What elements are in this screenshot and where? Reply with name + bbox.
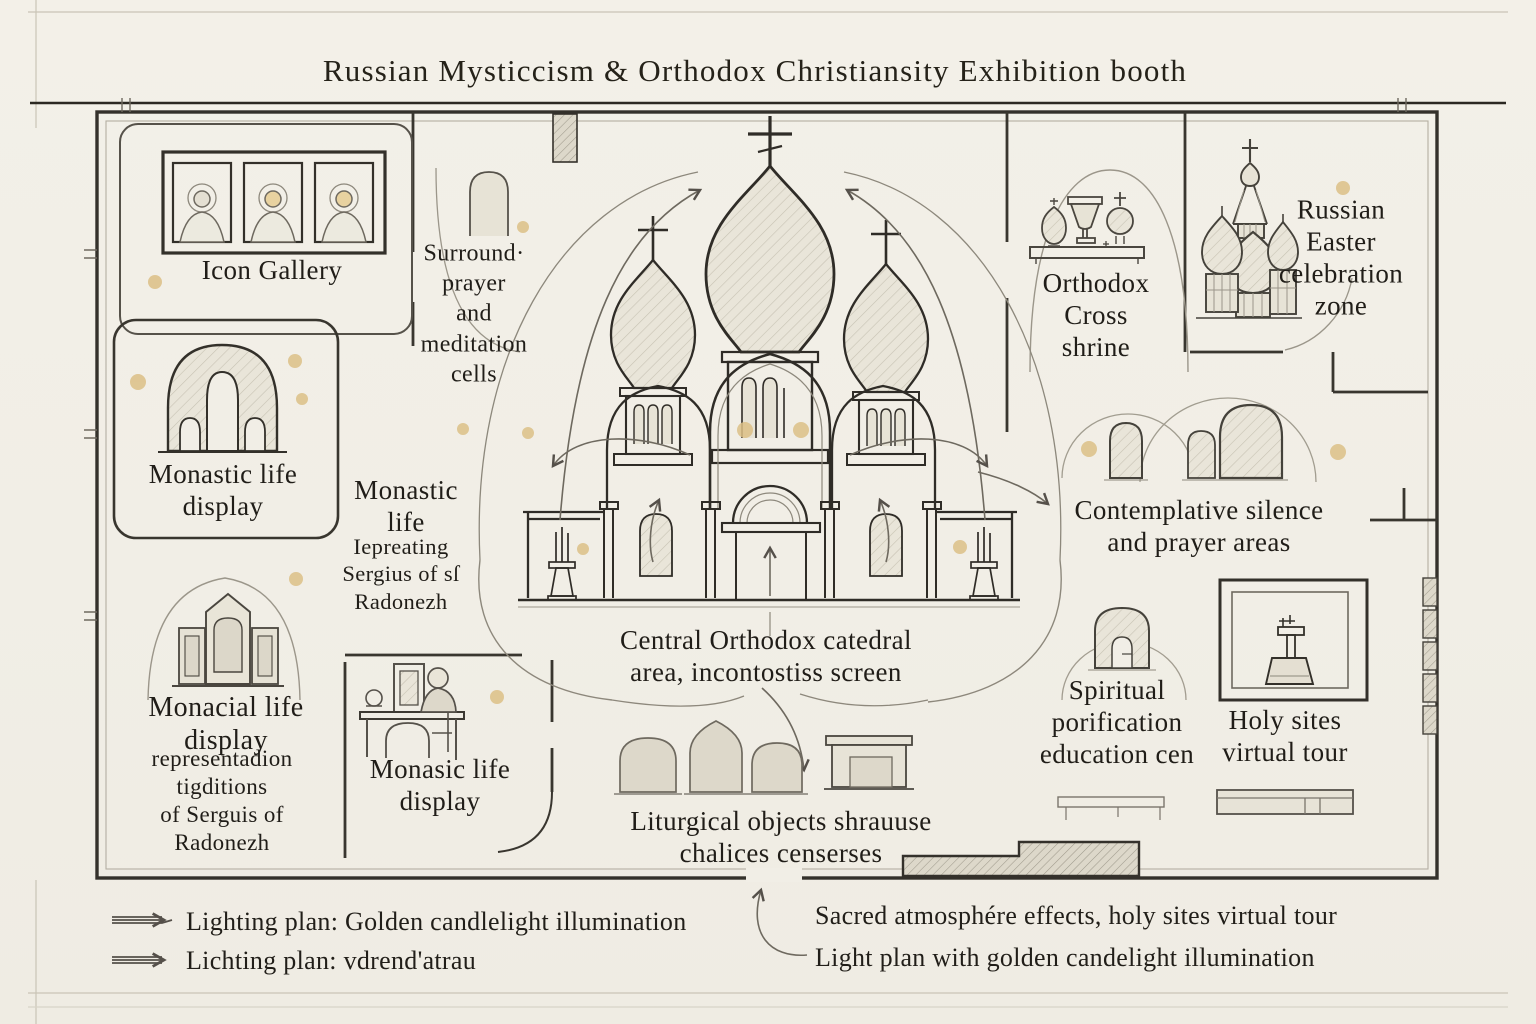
- zone-label-surround-cells: Surround· prayer and meditation cells: [421, 238, 528, 389]
- display-case-icon: [824, 736, 914, 789]
- display-niches-icon: [614, 721, 914, 794]
- zone-label-liturgical-objects: Liturgical objects shrauuse chalices cen…: [630, 806, 931, 870]
- bench-icon: [1058, 790, 1353, 820]
- triptych-shrine-icon: [172, 594, 284, 686]
- orb-cross-icon: [1107, 192, 1133, 244]
- zone-label-holy-sites: Holy sites virtual tour: [1222, 705, 1348, 769]
- monk-at-desk-icon: [360, 664, 464, 760]
- wall-pier: [553, 114, 577, 162]
- orthodox-cathedral-icon: [518, 116, 1020, 607]
- arched-window-icon: [158, 345, 287, 452]
- zone-label-spiritual-education: Spiritual porification education cen: [1040, 675, 1194, 771]
- zone-label-central-cathedral: Central Orthodox catedral area, incontos…: [620, 625, 912, 689]
- chalice-icon: [1068, 197, 1102, 243]
- legend-atmosphere-1: Sacred atmosphére effects, holy sites vi…: [815, 901, 1337, 931]
- side-tower-left: [1202, 206, 1242, 312]
- zone-label-orthodox-cross-shrine: Orthodox Cross shrine: [1043, 268, 1150, 364]
- prayer-cell-niche-icon: [470, 172, 508, 236]
- orb-icon: [1042, 198, 1066, 246]
- candle-stand-icon: [970, 527, 998, 600]
- zone-label-contemplative: Contemplative silence and prayer areas: [1074, 495, 1323, 559]
- chalice-shelf-icon: [1030, 192, 1144, 264]
- zone-label-icon-gallery: Icon Gallery: [202, 255, 343, 287]
- zone-label-monastic-life-sub: Iepreating Sergius of sſ Radonezh: [342, 533, 459, 615]
- prayer-niche-icon: [1104, 405, 1288, 480]
- legend-lighting-plan-1: Lighting plan: Golden candlelight illumi…: [186, 907, 687, 937]
- triple-icon-frames-icon: [163, 152, 385, 253]
- virtual-tour-kiosk-icon: [1220, 580, 1367, 700]
- exhibition-booth-plan: Russian Mysticcism & Orthodox Christians…: [0, 0, 1536, 1024]
- page-title: Russian Mysticcism & Orthodox Christians…: [323, 53, 1187, 89]
- candle-stand-icon: [548, 527, 576, 600]
- legend-arrow-icon: [112, 917, 172, 963]
- legend-lighting-plan-2: Lichting plan: vdrend'atrau: [186, 946, 476, 976]
- zone-label-russian-easter: Russian Easter celebration zone: [1279, 194, 1403, 321]
- zone-label-monacial-sub: representadion tigditions of Serguis of …: [152, 745, 293, 857]
- zone-label-monasic-life: Monasic life display: [370, 754, 511, 818]
- legend-atmosphere-2: Light plan with golden candelight illumi…: [815, 943, 1315, 973]
- zone-label-monastic-life-heading: Monastic life: [354, 475, 458, 539]
- wall-blocks: [1423, 578, 1437, 734]
- education-niche-icon: [1088, 608, 1156, 670]
- zone-label-monastic-life-display: Monastic life display: [149, 459, 297, 523]
